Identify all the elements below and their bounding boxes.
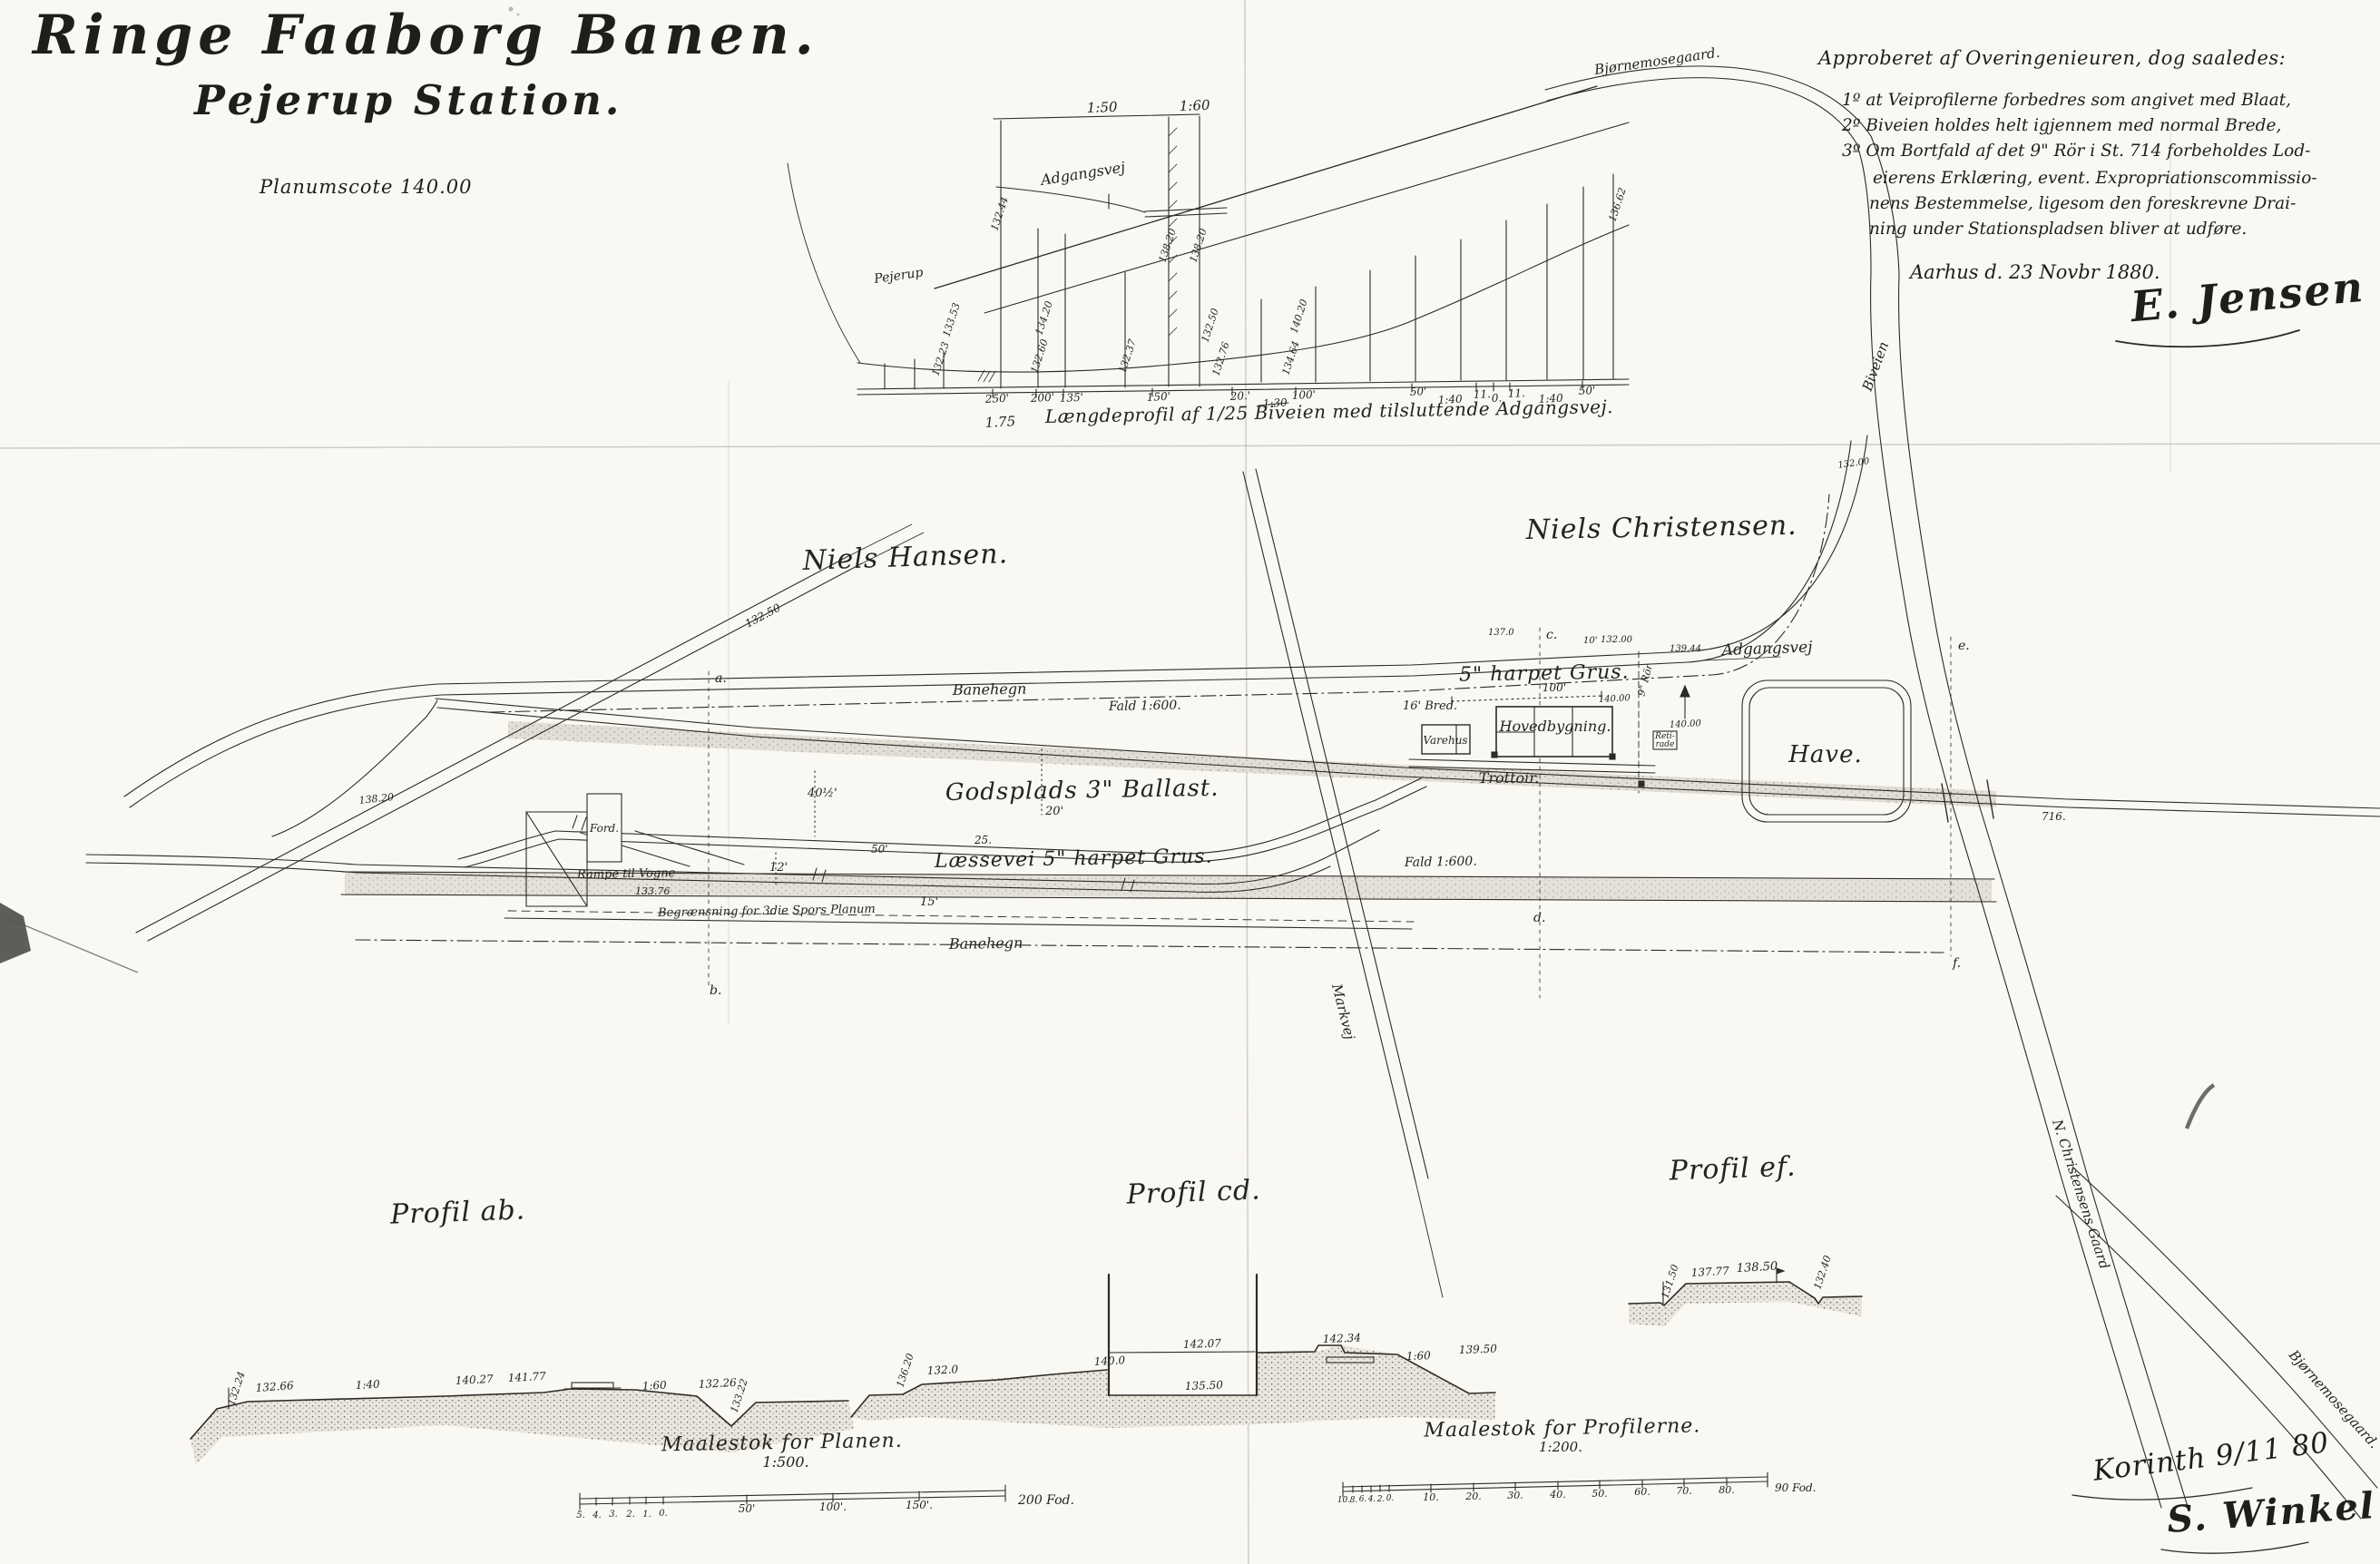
annotation: 10. xyxy=(1423,1491,1439,1503)
road-to-christensens-gaard xyxy=(1953,806,2161,1508)
approval-item-3-cont: nens Bestemmelse, ligesom den foreskrevn… xyxy=(1869,194,2296,213)
annotation: 132.23 xyxy=(929,340,951,377)
profile-cd-ground xyxy=(851,1345,1495,1428)
annotation: 1:60 xyxy=(1406,1349,1432,1363)
annotation: 140.0 xyxy=(1093,1354,1125,1368)
annotation: 10. xyxy=(1337,1496,1350,1505)
annotation: 135' xyxy=(1059,391,1083,405)
approval-heading: Approberet af Overingenieuren, dog saale… xyxy=(1818,47,2286,69)
profile-cd-title: Profil cd. xyxy=(1125,1174,1261,1210)
annotation: 716. xyxy=(2042,810,2066,823)
annotation: 1.75 xyxy=(984,413,1015,431)
annotation: Biveien xyxy=(1859,339,1893,394)
annotation: 50' xyxy=(1409,385,1426,398)
annotation: 140.27 xyxy=(455,1373,494,1387)
annotation: Adgangsvej xyxy=(1038,159,1127,190)
annotation: Fald 1:600. xyxy=(1404,855,1477,870)
annotation: 200 Fod. xyxy=(1017,1493,1074,1508)
annotation: 5. xyxy=(576,1510,585,1520)
drawing-subtitle: Pejerup Station. xyxy=(194,76,622,124)
plan-scale-title: Maalestok for Planen. xyxy=(661,1430,903,1457)
annotation: 150' xyxy=(1146,390,1170,404)
annotation: b. xyxy=(710,983,721,998)
garden-label: Have. xyxy=(1787,741,1863,768)
annotation: Pejerup xyxy=(872,266,924,288)
annotation: 1. xyxy=(642,1510,651,1520)
annotation: 70. xyxy=(1676,1485,1692,1497)
scale-bars xyxy=(580,1472,1768,1510)
landowner-name: Niels Christensen. xyxy=(1525,510,1797,546)
road-name: N. Christensens Gaard xyxy=(2049,1117,2113,1271)
annotation: 136.62 xyxy=(1606,186,1628,223)
profile-ef-title: Profil ef. xyxy=(1668,1151,1797,1188)
underpass-walls xyxy=(1109,1275,1257,1395)
annotation: 15' xyxy=(920,895,938,909)
approval-item-3-cont: ning under Stationspladsen bliver at udf… xyxy=(1869,220,2247,239)
annotation: 132.26 xyxy=(698,1376,737,1391)
annotation: e. xyxy=(1958,639,1970,653)
annotation: 1:500. xyxy=(762,1453,808,1471)
profile-ab-title: Profil ab. xyxy=(389,1194,526,1230)
approval-item-1: 1º at Veiprofilerne forbedres som angive… xyxy=(1842,91,2291,110)
scanned-drawing-sheet: 1:501:60AdgangsvejPejerup132.44138.20138… xyxy=(0,0,2380,1564)
annotation: 142.34 xyxy=(1323,1332,1361,1345)
annotation: 8. xyxy=(1350,1496,1358,1505)
annotation: 2. xyxy=(625,1510,635,1520)
long-profile-caption: Længdeprofil af 1/25 Biveien med tilslut… xyxy=(1044,396,1614,427)
annotation: Trottoir. xyxy=(1479,769,1540,787)
annotation: 100' xyxy=(1291,388,1316,402)
annotation: 142.07 xyxy=(1183,1337,1222,1351)
annotation: Ford. xyxy=(589,822,619,835)
annotation: 25. xyxy=(974,834,992,846)
annotation: 6. xyxy=(1359,1495,1367,1504)
annotation: 1:200. xyxy=(1539,1439,1582,1455)
annotation: 132.50 xyxy=(1199,307,1220,344)
annotation: 138.20 xyxy=(1156,227,1178,264)
annotation: 2. xyxy=(1376,1495,1386,1504)
annotation: 60. xyxy=(1634,1486,1650,1498)
station-plan xyxy=(86,272,2380,1519)
annotation: 50' xyxy=(871,843,888,855)
main-building-label: Hovedbygning. xyxy=(1499,718,1611,735)
annotation: a. xyxy=(715,671,727,686)
annotation: 138.50 xyxy=(1736,1260,1778,1276)
annotation: 136.20 xyxy=(894,1352,916,1389)
longitudinal-profile xyxy=(788,66,1899,406)
annotation: 1:50 xyxy=(1087,99,1119,116)
annotation: Banehegn xyxy=(948,934,1023,953)
annotation: 1:60 xyxy=(642,1379,667,1393)
annotation: 20. xyxy=(1464,1491,1482,1502)
annotation: 0. xyxy=(1386,1494,1395,1503)
annotation: 133.53 xyxy=(940,301,962,338)
annotation: 135.50 xyxy=(1185,1379,1224,1393)
annotation: 90 Fod. xyxy=(1775,1481,1816,1494)
annotation: 134.20 xyxy=(1033,299,1054,337)
warehouse-label: Varehus xyxy=(1423,734,1467,747)
annotation: c. xyxy=(1546,628,1557,642)
annotation: 4. xyxy=(1367,1495,1376,1504)
annotation: 10' xyxy=(1583,636,1597,646)
annotation: 50. xyxy=(1592,1488,1608,1500)
annotation: 132.40 xyxy=(1811,1254,1833,1291)
annotation: 1:60 xyxy=(1180,97,1211,114)
annotation: 12' xyxy=(769,861,788,875)
annotation: 133.76 xyxy=(635,885,671,897)
annotation: Fald 1:600. xyxy=(1108,699,1181,714)
annotation: 150'. xyxy=(906,1499,933,1511)
goods-yard-label: Godsplads 3" Ballast. xyxy=(945,775,1219,806)
annotation: 20.' xyxy=(1229,389,1250,403)
annotation: 16' Bred. xyxy=(1403,699,1457,713)
annotation: 140.20 xyxy=(1288,298,1309,335)
annotation: 132.37 xyxy=(1116,337,1138,375)
annotation: 20' xyxy=(1044,805,1063,818)
annotation: 141.77 xyxy=(507,1370,546,1384)
annotation: 80. xyxy=(1719,1484,1735,1496)
annotation: 138.20 xyxy=(1187,227,1209,264)
annotation: d. xyxy=(1533,911,1545,925)
annotation: 132.66 xyxy=(255,1379,294,1394)
annotation: 137.0 xyxy=(1488,628,1514,638)
annotation: 132.0 xyxy=(926,1363,958,1377)
scan-edge-mark xyxy=(0,903,31,963)
landowner-name: Niels Hansen. xyxy=(801,538,1009,577)
approval-item-2: 2º Biveien holdes helt igjennem med norm… xyxy=(1842,116,2281,135)
annotation: 1:40 xyxy=(355,1378,380,1392)
approval-dateline: Aarhus d. 23 Novbr 1880. xyxy=(1910,261,2160,283)
annotation: 138.20 xyxy=(358,791,395,806)
annotation: 132.44 xyxy=(988,195,1010,232)
annotation: 0. xyxy=(659,1509,668,1519)
pencil-mark xyxy=(2187,1085,2214,1129)
annotation: 132.00 xyxy=(1837,456,1871,471)
annotation: 139.50 xyxy=(1459,1343,1498,1356)
annotation: 250' xyxy=(984,392,1009,406)
annotation: 3. xyxy=(609,1510,618,1520)
annotation: 100' xyxy=(1543,681,1566,694)
road-name: Bjørnemosegaard. xyxy=(1592,44,1720,78)
annotation: 139.44 xyxy=(1670,644,1701,654)
annotation: 40. xyxy=(1549,1489,1566,1500)
datum-note: Planumscote 140.00 xyxy=(260,176,473,198)
plan-scale-bar xyxy=(580,1491,1005,1504)
approval-item-3-cont: eierens Erklæring, event. Expropriations… xyxy=(1873,169,2317,188)
annotation: 100'. xyxy=(819,1500,847,1513)
annotation: Rampe til Vogne xyxy=(576,866,676,882)
annotation: 200' xyxy=(1029,391,1054,405)
annotation: f. xyxy=(1952,956,1961,971)
annotation: Begrænsning for 3die Spors Planum xyxy=(657,903,876,920)
annotation: Markvej xyxy=(1328,982,1358,1041)
annotation: 134.64 xyxy=(1279,339,1301,376)
annotation: 132.50 xyxy=(743,601,783,630)
annotation: 132.60 xyxy=(1028,337,1050,375)
main-track xyxy=(436,699,2380,808)
loading-road-label: Læssevei 5" harpet Grus. xyxy=(934,846,1213,873)
annotation: 40½' xyxy=(807,787,837,800)
annotation: rade xyxy=(1656,740,1675,749)
approval-item-3: 3º Om Bortfald af det 9" Rör i St. 714 f… xyxy=(1842,142,2310,161)
drawing-title: Ringe Faaborg Banen. xyxy=(33,4,819,67)
annotation: 140.00 xyxy=(1599,693,1631,705)
annotation: 137.77 xyxy=(1690,1265,1729,1279)
fence-line-south xyxy=(356,940,1944,953)
annotation: 50' xyxy=(739,1502,756,1515)
annotation: 30. xyxy=(1507,1490,1523,1501)
annotation: 140.00 xyxy=(1670,718,1702,730)
annotation: Adgangsvej xyxy=(1719,639,1813,660)
signature-flourishes xyxy=(2072,330,2308,1553)
annotation: 4. xyxy=(592,1510,602,1520)
annotation: Banehegn xyxy=(952,680,1027,699)
markvej-road xyxy=(1243,469,1428,1181)
annotation: 132.00 xyxy=(1601,635,1633,645)
